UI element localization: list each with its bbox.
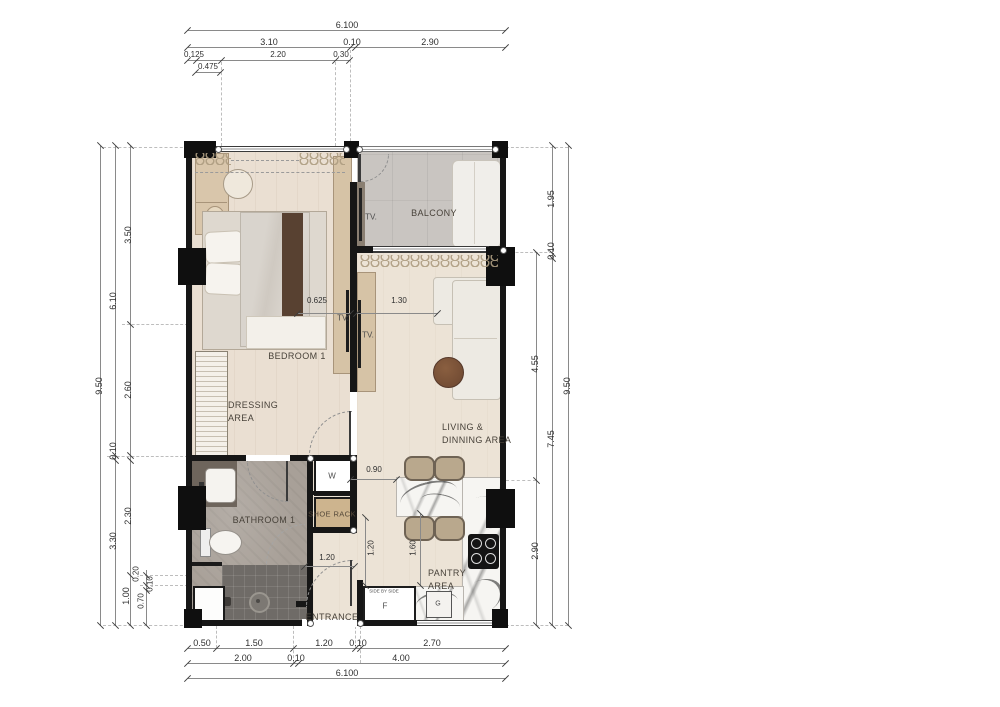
label-balcony: BALCONY (411, 208, 457, 218)
balcony-bench (452, 160, 501, 248)
dim-right-195: 1.95 (546, 190, 556, 208)
dim-left-260: 2.60 (123, 381, 133, 399)
wall-node (350, 527, 357, 534)
dim-inner-120v: 1.20 (367, 540, 376, 556)
dimension-line (536, 253, 537, 626)
dining-chair (434, 516, 465, 541)
dim-left-230: 2.30 (123, 507, 133, 525)
balcony-bench-seam (474, 162, 475, 244)
label-tv-living: TV. (362, 331, 374, 340)
bed-sheet (246, 316, 326, 349)
dimension-line (357, 313, 438, 314)
bathroom-sink (205, 468, 236, 503)
balcony-tv (359, 188, 362, 241)
wall-tv (350, 250, 357, 392)
extension-line (221, 62, 222, 146)
dimension-line (188, 663, 506, 664)
wall-node (350, 455, 357, 462)
dim-top-010: 0.10 (343, 37, 361, 47)
dim-bottom-050: 0.50 (193, 638, 211, 648)
dim-inner-090: 0.90 (366, 465, 382, 474)
shower-partition (192, 562, 222, 566)
label-living-dining: LIVING & DINNING AREA (442, 421, 511, 447)
dimension-line (188, 47, 506, 48)
dim-left-610: 6.10 (108, 292, 118, 310)
dim-left-020: 0.20 (132, 566, 141, 582)
dim-bottom-120: 1.20 (315, 638, 333, 648)
column (178, 248, 206, 285)
toilet-bowl (209, 530, 242, 555)
dim-top-030: 0.30 (333, 50, 349, 59)
bedroom-window (216, 146, 344, 152)
wall-right (500, 146, 506, 626)
dim-inner-160: 1.60 (409, 540, 418, 556)
sofa-seam (454, 338, 497, 339)
balcony-railing (359, 146, 494, 152)
dim-inner-120h: 1.20 (319, 553, 335, 562)
dimension-line (115, 146, 116, 626)
bed-pillow (204, 230, 244, 264)
dim-top-0475: 0.475 (198, 62, 218, 71)
label-pantry-area: PANTRY AREA (428, 567, 466, 593)
label-bathroom: BATHROOM 1 (233, 515, 296, 525)
kitchen-window (417, 620, 495, 626)
dim-bottom-010b: 0.10 (287, 653, 305, 663)
round-mirror (223, 169, 253, 199)
dim-left-950: 9.50 (94, 377, 104, 395)
dim-bottom-150: 1.50 (245, 638, 263, 648)
dim-left-010a: 0.10 (108, 442, 118, 460)
dim-bottom-400: 4.00 (392, 653, 410, 663)
wall-node (492, 146, 499, 153)
dim-top-total: 6.100 (336, 20, 359, 30)
wall-left (186, 146, 192, 626)
wall-node (343, 146, 350, 153)
wall-balcony-stub-left (357, 246, 373, 253)
dim-bottom-200: 2.00 (234, 653, 252, 663)
dimension-line (552, 146, 553, 626)
wall-closet-mid (313, 491, 357, 495)
dimension-line (188, 648, 506, 649)
dim-bottom-010a: 0.10 (349, 638, 367, 648)
dim-left-100: 1.00 (121, 587, 131, 605)
cooktop-burner (485, 538, 496, 549)
dim-top-0125: 0.125 (184, 50, 204, 59)
curtain-bedroom-left (195, 153, 231, 165)
curtain-track (195, 172, 345, 173)
label-dressing-area: DRESSING AREA (228, 399, 278, 425)
label-fridge: F (383, 602, 388, 611)
dimension-line (420, 514, 421, 586)
dim-right-455: 4.55 (530, 355, 540, 373)
dimension-line (188, 60, 350, 61)
bed-pillow (204, 262, 244, 296)
dimension-line (196, 72, 221, 73)
curtain-bedroom-right (299, 153, 345, 165)
extension-line (335, 62, 336, 146)
curtain-track (231, 160, 299, 161)
dimension-line (365, 518, 366, 586)
column (178, 486, 206, 530)
dim-right-290: 2.90 (530, 542, 540, 560)
column (486, 489, 515, 528)
extension-line (107, 456, 188, 457)
dim-right-745: 7.45 (546, 430, 556, 448)
column (184, 609, 202, 628)
wall-divider-mid (350, 182, 357, 250)
curtain-living (360, 255, 498, 267)
wall-bath-top-left (192, 455, 246, 461)
label-tv-balcony: TV. (365, 213, 377, 222)
dim-inner-130: 1.30 (391, 296, 407, 305)
label-washer: W (328, 472, 336, 481)
cooktop-burner (485, 553, 496, 564)
vanity-divider (195, 202, 227, 203)
extension-line (350, 50, 351, 146)
dim-top-310: 3.10 (260, 37, 278, 47)
dim-left-010b: 0.10 (146, 576, 155, 592)
label-entrance: ENTRANCE (306, 612, 359, 622)
coffee-table (433, 357, 464, 388)
extension-line (506, 480, 536, 481)
dining-chair (404, 456, 435, 481)
wall-node (307, 455, 314, 462)
dimension-line (351, 479, 397, 480)
dim-right-010: 0.10 (546, 242, 556, 260)
dim-right-950: 9.50 (562, 377, 572, 395)
label-bedroom: BEDROOM 1 (268, 351, 326, 361)
dim-top-220: 2.20 (270, 50, 286, 59)
dim-inner-0625: 0.625 (307, 296, 327, 305)
cooktop-burner (471, 553, 482, 564)
dim-left-350: 3.50 (123, 226, 133, 244)
label-shoe-rack: SHOE RACK (308, 510, 356, 519)
dim-top-290: 2.90 (421, 37, 439, 47)
extension-line (216, 626, 217, 648)
label-fridge-note: SIDE BY SIDE (369, 589, 398, 594)
dimension-line (188, 30, 506, 31)
wall-node (356, 146, 363, 153)
dim-bottom-270: 2.70 (423, 638, 441, 648)
wall-node (215, 146, 222, 153)
dining-chair (434, 456, 465, 481)
extension-line (506, 147, 568, 148)
sliding-glass-door (373, 246, 489, 253)
column (492, 609, 508, 628)
door-leaf-bathroom (286, 461, 288, 501)
shower-drain (249, 592, 270, 613)
door-leaf-balcony (358, 154, 361, 182)
dimension-line (188, 678, 506, 679)
floor-plan-canvas: 6.100 3.10 0.10 2.90 0.125 2.20 0.30 0.4… (0, 0, 1000, 707)
dimension-line (305, 566, 355, 567)
door-leaf-dressing (349, 411, 351, 455)
dimension-line (298, 313, 351, 314)
label-stove: G (435, 601, 440, 608)
dim-left-070: 0.70 (137, 593, 146, 609)
wall-node (500, 247, 507, 254)
dim-bottom-total: 6.100 (336, 668, 359, 678)
shower-drain-dot (256, 599, 260, 603)
wardrobe-shelves (195, 351, 228, 457)
dim-left-330: 3.30 (108, 532, 118, 550)
cooktop-burner (471, 538, 482, 549)
